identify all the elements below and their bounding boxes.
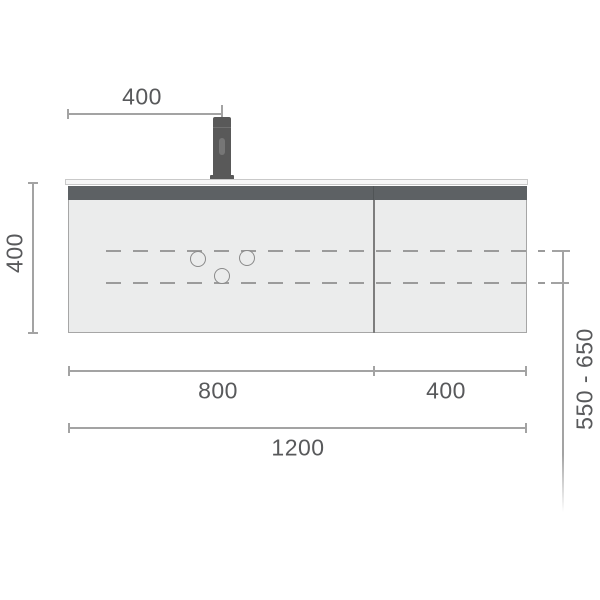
drain-hole-circle [190, 251, 206, 267]
faucet-seam [213, 127, 231, 128]
technical-drawing: 400 400 800 400 1200 550 - 650 [0, 0, 600, 600]
cabinet-countertop [65, 179, 528, 185]
dim-line-drain-height [562, 251, 564, 512]
dim-tick [525, 366, 527, 376]
dim-tick [373, 366, 375, 376]
cabinet-top-band [68, 186, 527, 200]
cabinet-top-band-seam [373, 186, 374, 200]
dim-tick [68, 423, 70, 433]
dim-tick [67, 109, 69, 119]
faucet-handle-detail [219, 138, 225, 155]
dim-tick [551, 282, 569, 284]
dim-line-total-width [69, 427, 526, 429]
drain-range-upper-dashed-line [106, 250, 545, 252]
dim-label-drain-height-range: 550 - 650 [572, 328, 599, 430]
dim-tick [28, 332, 38, 334]
dim-tick [552, 250, 570, 252]
dim-label-tap-offset: 400 [122, 84, 162, 111]
dim-label-left-section-width: 800 [198, 378, 238, 405]
dim-tick [28, 182, 38, 184]
dim-label-cabinet-height: 400 [2, 233, 29, 273]
cabinet-section-divider [373, 200, 375, 333]
cabinet-body [68, 200, 527, 333]
dim-label-total-width: 1200 [271, 435, 324, 462]
dim-label-right-section-width: 400 [426, 378, 466, 405]
dim-tick [68, 366, 70, 376]
dim-line-cabinet-height [32, 183, 34, 333]
drain-range-lower-dashed-line [106, 282, 545, 284]
dim-line-tap-offset [68, 113, 222, 115]
dim-line-section-widths [69, 370, 526, 372]
drain-hole-circle [239, 250, 255, 266]
dim-tick [525, 423, 527, 433]
drain-hole-circle [214, 268, 230, 284]
